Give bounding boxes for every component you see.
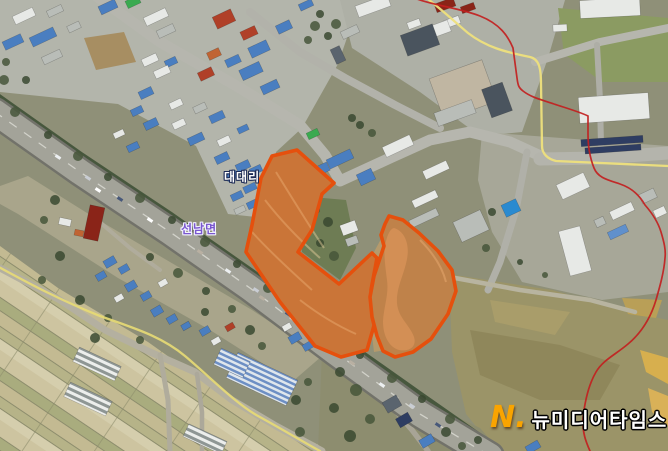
map-canvas <box>0 0 668 451</box>
satellite-map: 대대리 선남면 N. 뉴미디어타임스 <box>0 0 668 451</box>
